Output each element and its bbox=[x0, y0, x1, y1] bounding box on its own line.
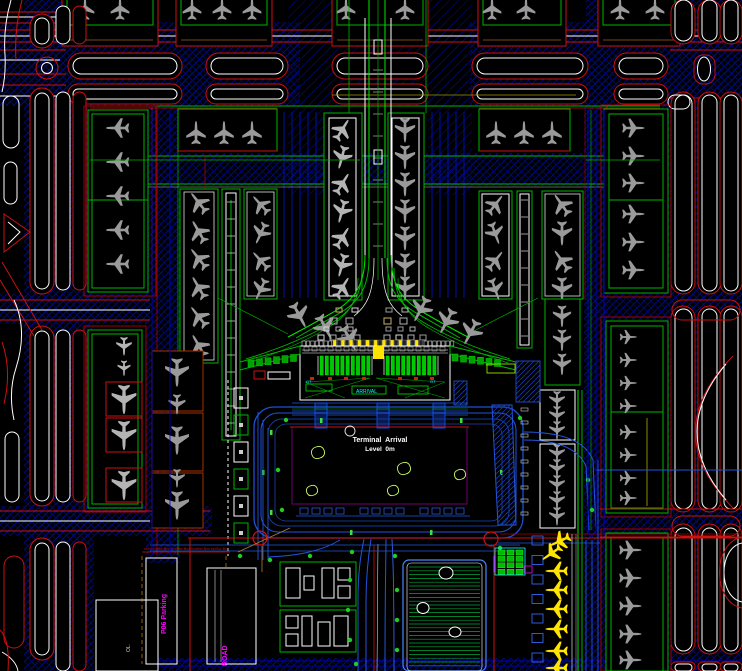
svg-text:GT: GT bbox=[306, 379, 312, 384]
svg-text:ROAD: ROAD bbox=[222, 645, 229, 666]
svg-text:P06 Parking: P06 Parking bbox=[161, 594, 168, 634]
svg-text:GT: GT bbox=[430, 379, 436, 384]
svg-text:Level 0m: Level 0m bbox=[365, 446, 395, 453]
svg-text:Terminal Arrival: Terminal Arrival bbox=[353, 437, 408, 444]
svg-text:xxx Sxxxlixx Bxx SxxMxx Bxx Sx: xxx Sxxxlixx Bxx SxxMxx Bxx SxxMxx Bxx x… bbox=[144, 547, 229, 551]
svg-text:OL.: OL. bbox=[126, 644, 132, 652]
svg-text:ARRIVAL: ARRIVAL bbox=[356, 389, 377, 395]
